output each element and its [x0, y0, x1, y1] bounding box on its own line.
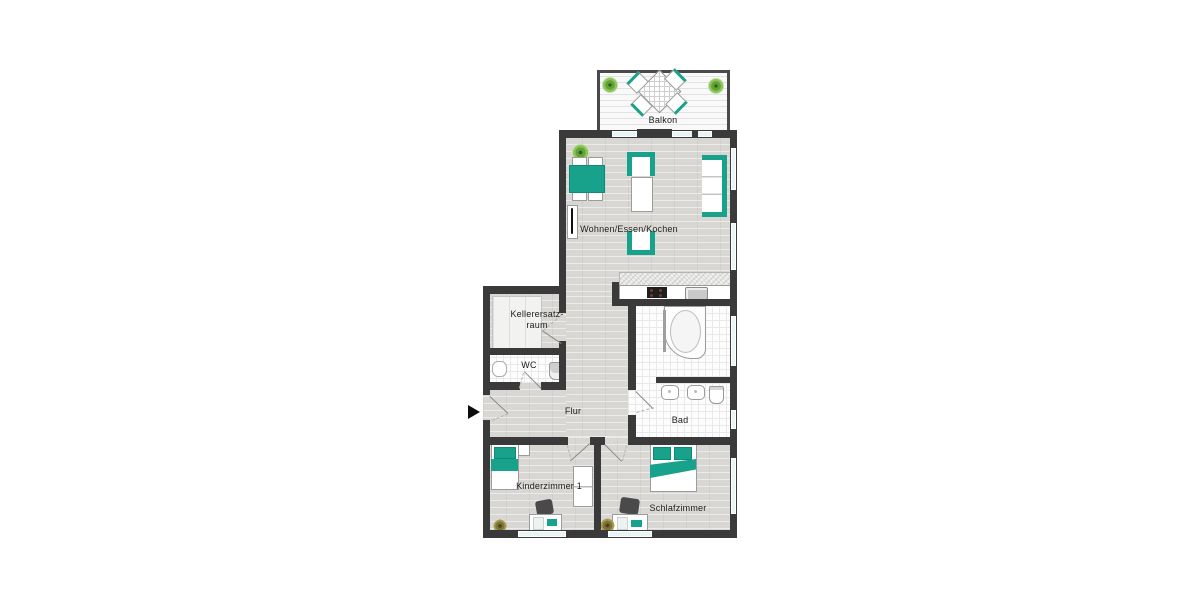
room-label-keller-line1: Kellerersatz-: [510, 309, 563, 319]
vanity-counter: [656, 377, 730, 383]
room-label-balkon: Balkon: [649, 115, 678, 125]
coffee-table: [631, 177, 653, 212]
window: [731, 148, 736, 190]
wall-bad-bottom: [628, 437, 737, 445]
room-label-kinderzimmer: Kinderzimmer 1: [516, 481, 582, 491]
sofa: [702, 155, 727, 217]
wash-basin: [492, 361, 507, 377]
room-label-wc: WC: [521, 360, 536, 370]
dining-table: [569, 165, 605, 193]
flur-floor: [483, 382, 566, 445]
floor-plan: Balkon Wohnen/Essen/Kochen Kellerersatz-…: [0, 0, 1200, 600]
room-label-schlafzimmer: Schlafzimmer: [650, 503, 707, 513]
wall-kitchen-stub: [612, 282, 619, 299]
radiator-fin: [571, 208, 573, 234]
wall-keller-top: [483, 286, 566, 294]
desk-chair: [619, 497, 640, 515]
bathtub-faucet: [663, 310, 666, 352]
bathtub-basin: [670, 310, 701, 353]
wall-bad-left: [628, 306, 636, 390]
balcony-wall-left: [597, 70, 600, 130]
kitchen-counter: [619, 285, 731, 300]
wall-flur-bottom: [483, 437, 568, 445]
wall-wc-flur: [483, 382, 520, 390]
bed-pillow: [674, 447, 692, 460]
balcony-door: [637, 129, 672, 138]
window-mullion: [692, 130, 698, 138]
window: [731, 458, 736, 514]
radiator: [567, 205, 578, 239]
wall-bedroom-divider: [594, 445, 601, 530]
entrance-arrow-icon: [468, 405, 480, 419]
window: [731, 316, 736, 366]
window: [731, 223, 736, 270]
armchair: [627, 152, 655, 176]
window: [731, 410, 736, 429]
wall-left-lower: [483, 286, 490, 395]
room-label-wohnen: Wohnen/Essen/Kochen: [580, 224, 678, 234]
room-label-bad: Bad: [672, 415, 689, 425]
bed-blanket: [491, 459, 518, 471]
bed-pillow: [494, 447, 516, 459]
corridor-floor: [559, 296, 636, 445]
wall-flur-bottom: [590, 437, 605, 445]
plant-icon: [708, 78, 724, 94]
balcony-wall-top: [597, 70, 730, 73]
wall-bad-left: [628, 415, 636, 437]
room-label-keller-line2: raum: [526, 320, 547, 330]
room-label-flur: Flur: [565, 406, 581, 416]
wash-basin: [661, 385, 679, 400]
balcony-wall-right: [727, 70, 730, 130]
wall-keller-wc: [489, 348, 566, 355]
wash-basin: [687, 385, 705, 400]
plant-icon: [602, 77, 618, 93]
window: [608, 531, 652, 537]
bed-pillow: [653, 447, 671, 460]
nightstand: [518, 444, 530, 456]
window: [612, 131, 637, 137]
wall-wc-flur: [541, 382, 566, 390]
window: [518, 531, 566, 537]
toilet: [709, 386, 724, 404]
armchair: [627, 231, 655, 255]
stove: [647, 287, 667, 298]
wall-kitchen: [612, 299, 737, 306]
